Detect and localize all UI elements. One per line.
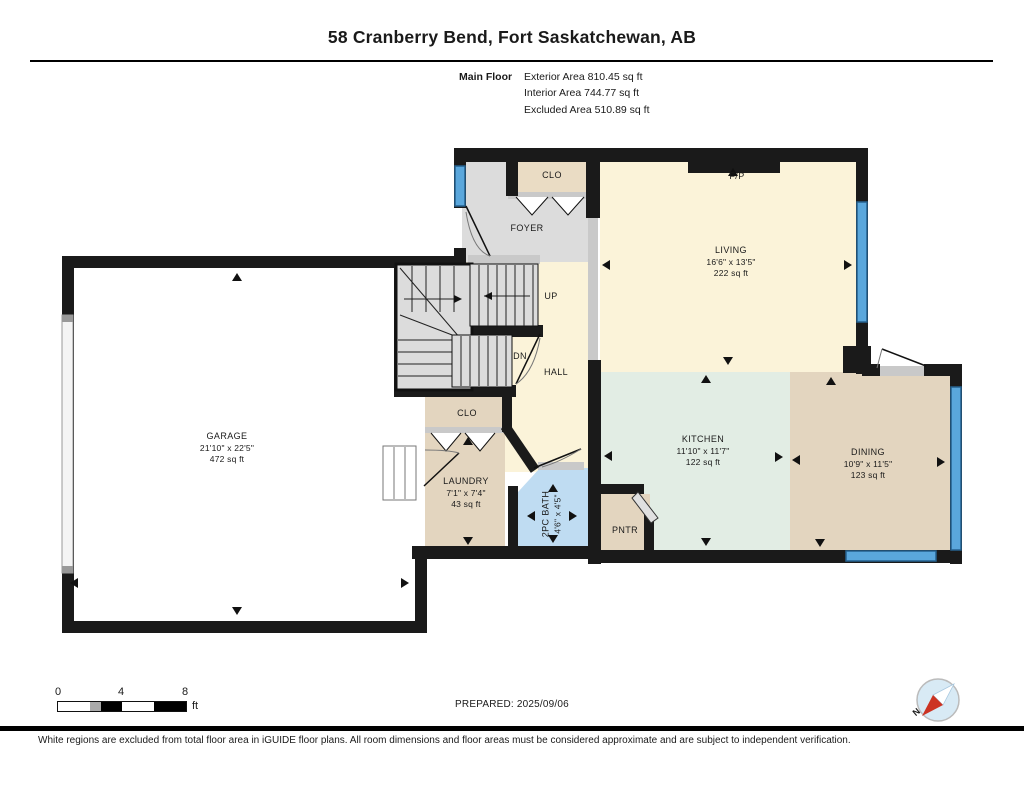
garage-step-landing: [383, 446, 416, 500]
patio-door: [882, 349, 926, 366]
fireplace-label: F/P: [729, 171, 744, 183]
kitchen-label: KITCHEN 11'10" x 11'7" 122 sq ft: [677, 434, 730, 468]
bath-label: 2PC BATH 4'6" x 4'5": [541, 491, 564, 538]
scale-tick-0: 0: [55, 686, 61, 698]
living-window: [857, 202, 867, 322]
laundry-label: LAUNDRY 7'1" x 7'4" 43 sq ft: [443, 476, 489, 510]
dining-label: DINING 10'9" x 11'5" 123 sq ft: [844, 447, 893, 481]
scale-tick-4: 4: [118, 686, 124, 698]
hall-label: HALL: [544, 367, 568, 379]
dining-side-window: [951, 387, 961, 550]
garage-label: GARAGE 21'10" x 22'5" 472 sq ft: [200, 431, 254, 465]
laundry-closet-label: CLO: [457, 408, 477, 420]
footer-divider: [0, 726, 1024, 731]
disclaimer-text: White regions are excluded from total fl…: [38, 735, 851, 746]
dining-bottom-window: [846, 551, 936, 561]
foyer-closet-label: CLO: [542, 170, 562, 182]
stairs-down-label: DN: [513, 351, 527, 363]
stair-up-block: [470, 264, 538, 326]
living-label: LIVING 16'6" x 13'5" 222 sq ft: [706, 245, 755, 279]
foyer-label: FOYER: [510, 223, 543, 235]
pantry-label: PNTR: [612, 525, 638, 537]
garage-door: [62, 315, 73, 573]
prepared-date: PREPARED: 2025/09/06: [0, 699, 1024, 710]
foyer-window: [455, 166, 465, 206]
scale-tick-8: 8: [182, 686, 188, 698]
stair-railing: [588, 218, 598, 362]
stairs-up-label: UP: [544, 291, 557, 303]
floorplan-page: 58 Cranberry Bend, Fort Saskatchewan, AB…: [0, 0, 1024, 791]
floorplan-drawing: [0, 0, 1024, 791]
